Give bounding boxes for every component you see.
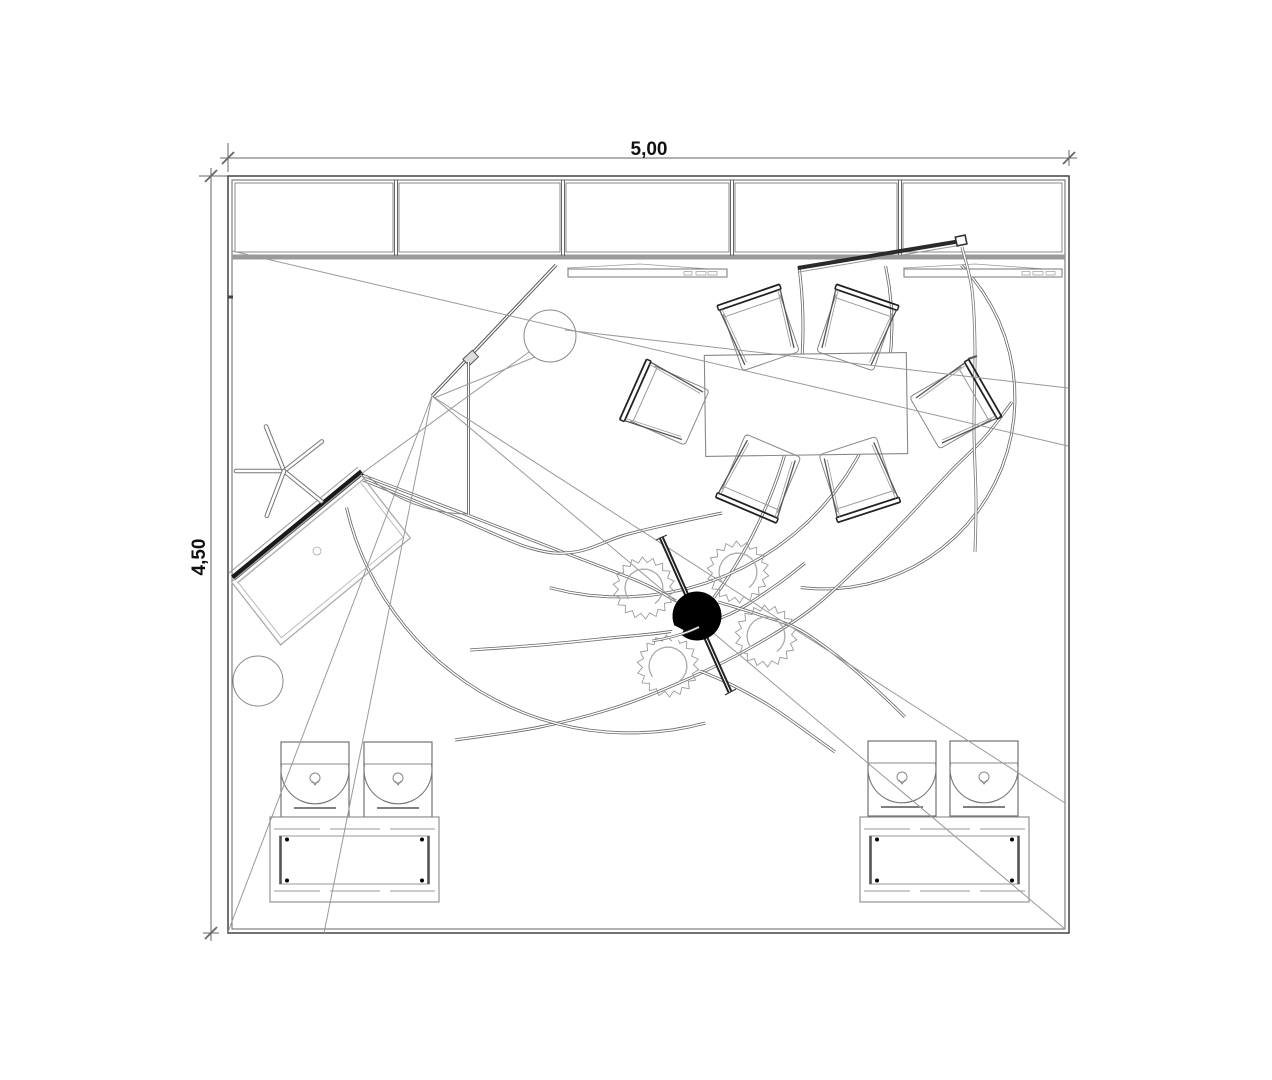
svg-text:5,00: 5,00 — [631, 139, 668, 160]
svg-text:4,50: 4,50 — [189, 539, 210, 576]
